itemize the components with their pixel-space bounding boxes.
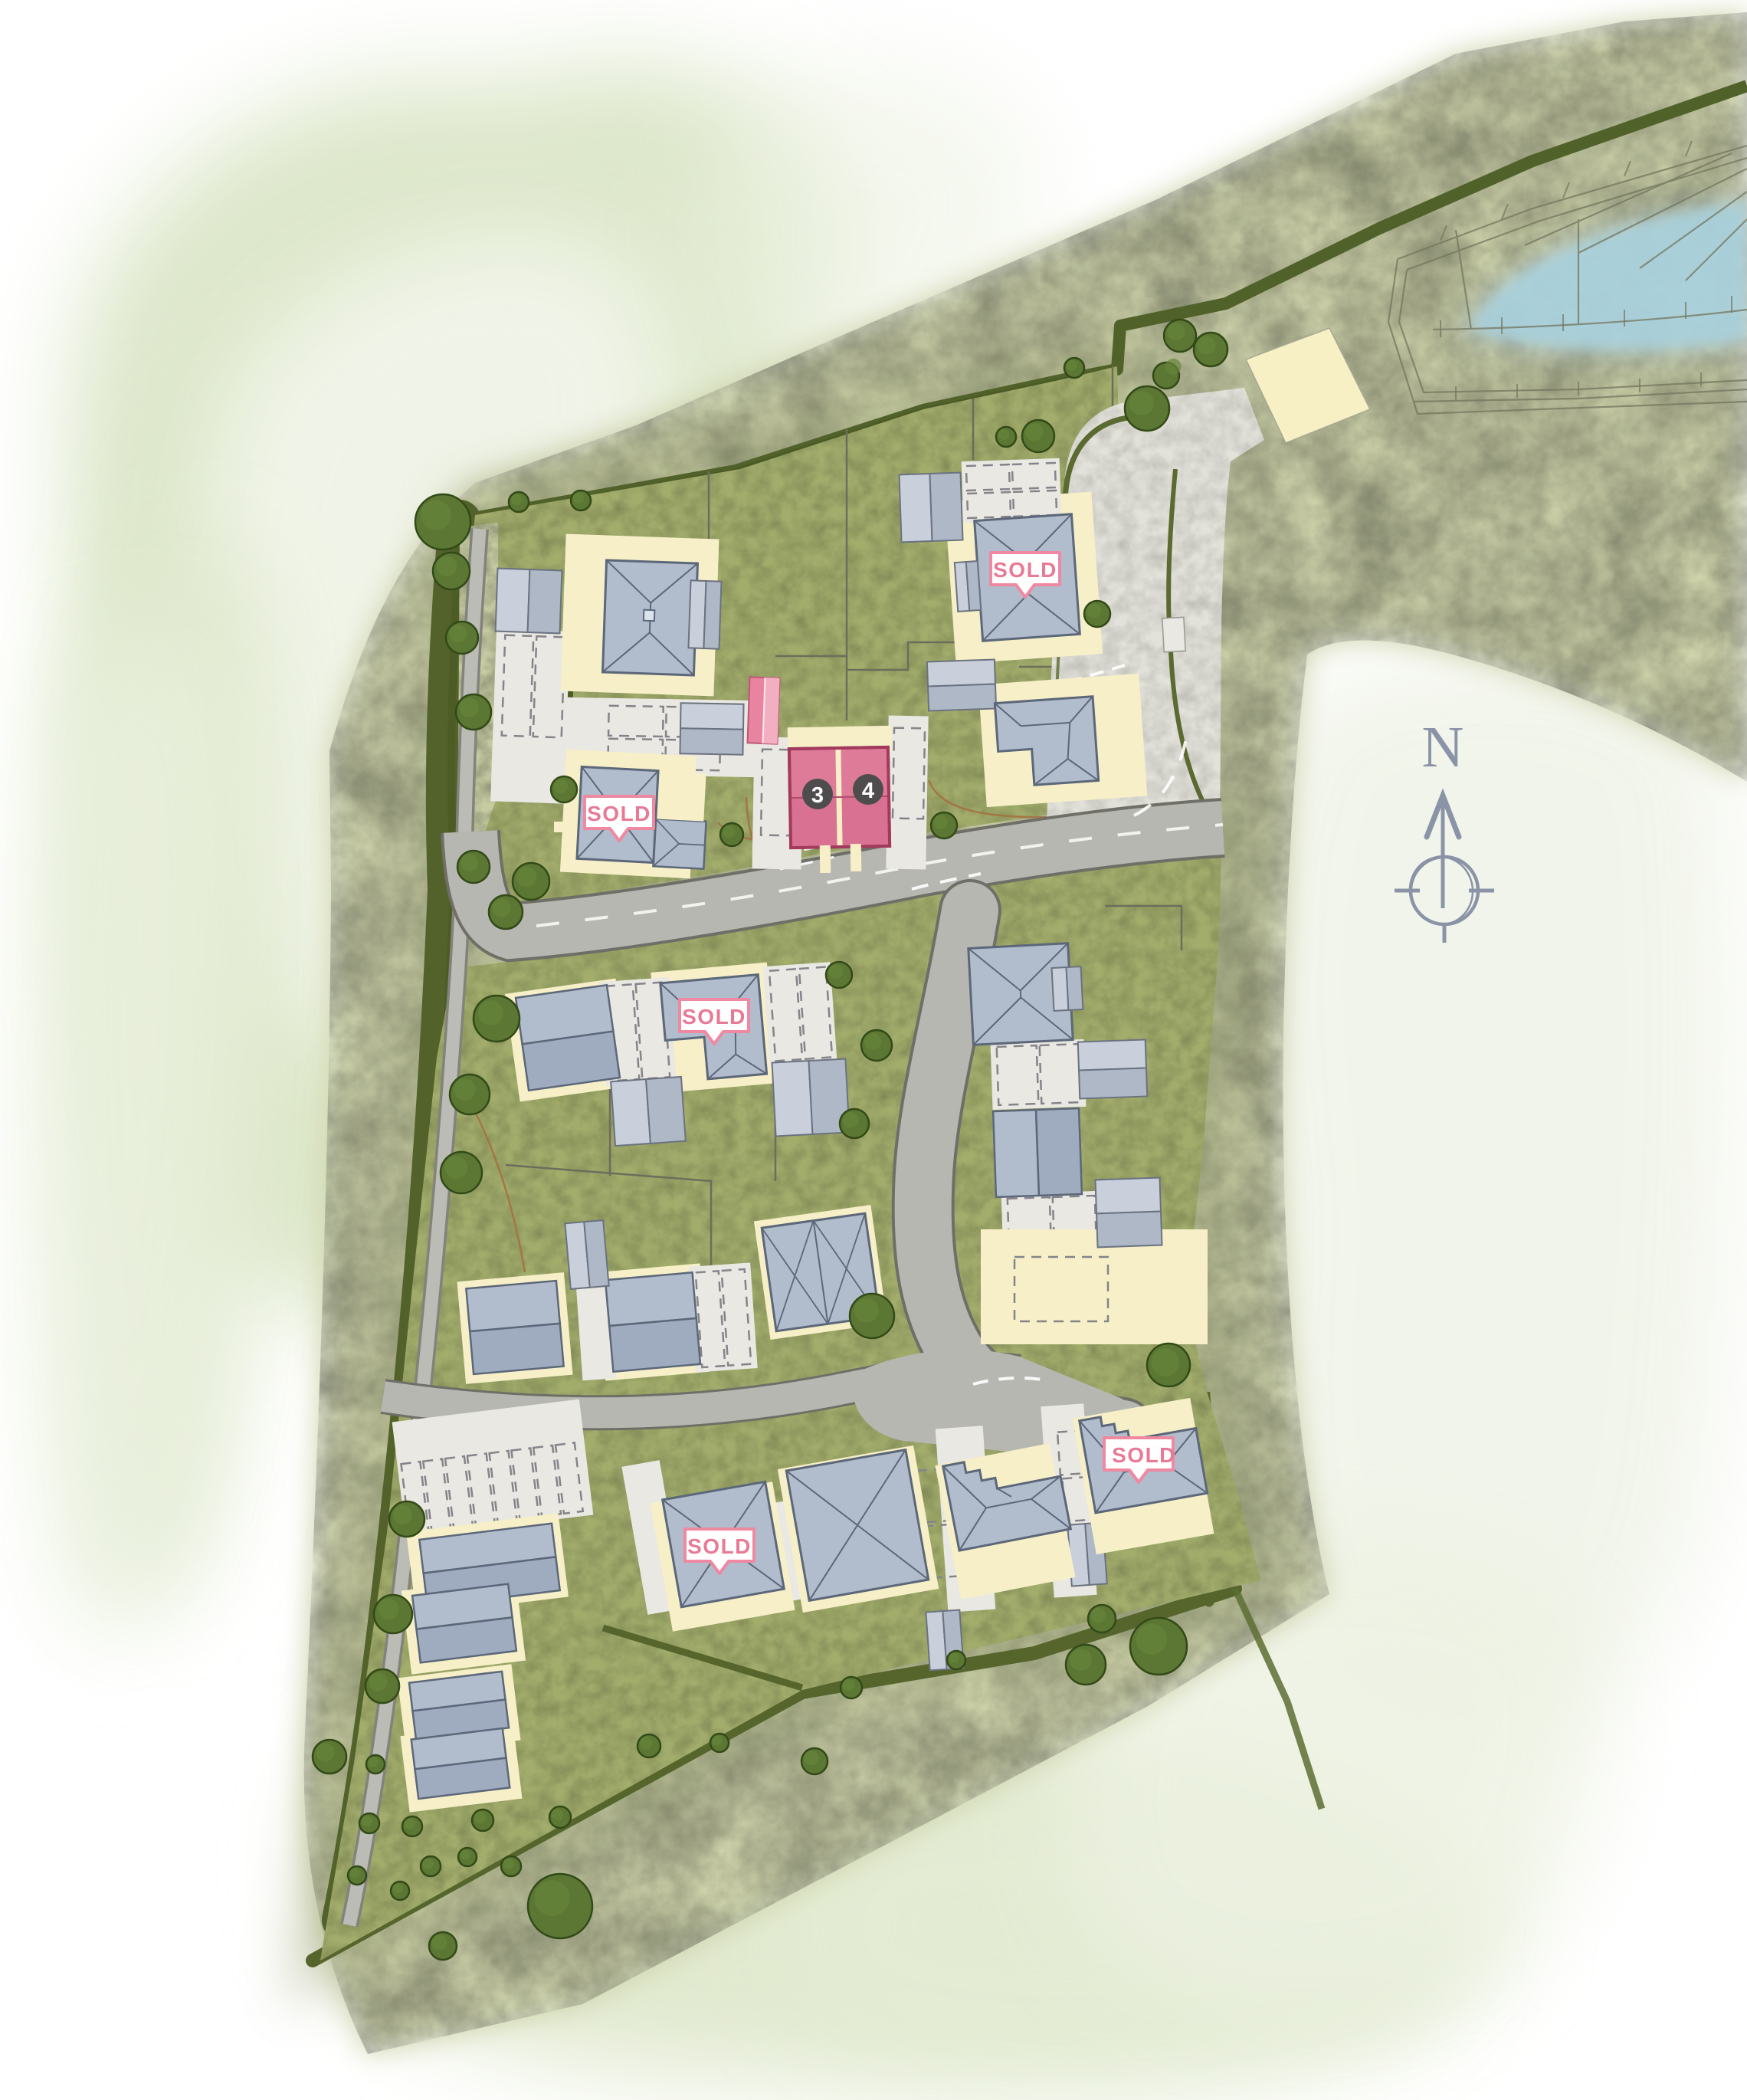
svg-text:SOLD: SOLD [993,558,1057,582]
svg-text:4: 4 [862,779,874,803]
svg-text:SOLD: SOLD [682,1005,746,1029]
svg-text:N: N [1422,715,1464,779]
svg-text:3: 3 [811,783,824,808]
svg-text:SOLD: SOLD [1112,1443,1176,1467]
svg-text:SOLD: SOLD [687,1534,752,1558]
svg-text:SOLD: SOLD [587,802,651,825]
